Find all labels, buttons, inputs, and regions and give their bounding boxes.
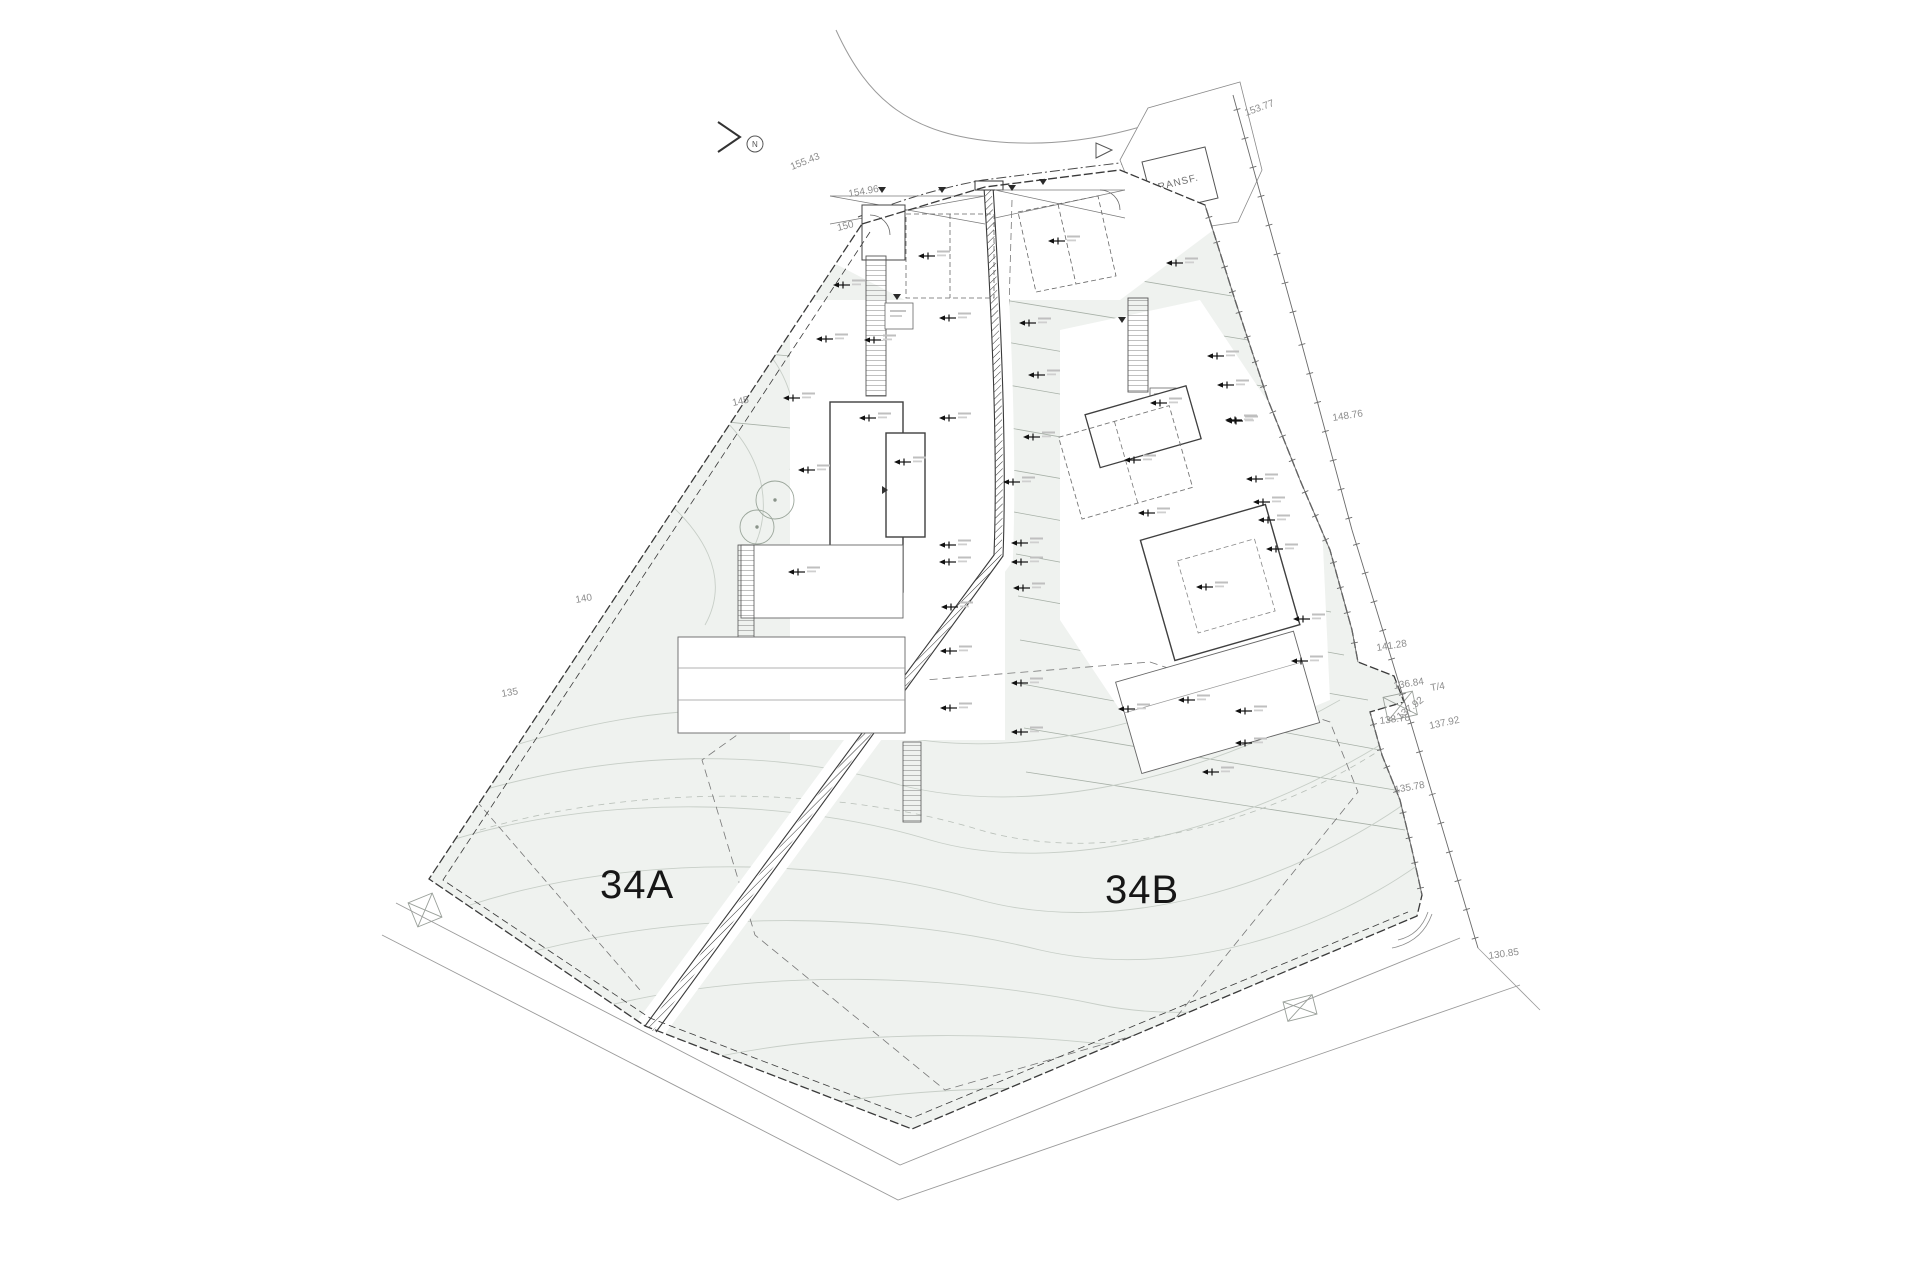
stairs-a3 [903, 742, 921, 822]
road-direction-arrow-icon [1096, 143, 1112, 158]
elevation-label: 140 [575, 592, 594, 606]
elevation-label: 135.78 [1394, 780, 1426, 796]
terrace-a1 [741, 545, 903, 618]
elevation-label: 130.85 [1488, 947, 1520, 962]
house-a-wing [886, 433, 925, 537]
north-arrow: N [718, 122, 763, 152]
utility-box-a [885, 303, 913, 329]
elevation-label: 153.77 [1243, 98, 1276, 119]
elevation-label: 154.96 [848, 184, 880, 200]
stairs-b1 [1128, 298, 1148, 392]
stairs-a1 [866, 256, 886, 396]
elevation-label: 150 [836, 219, 855, 234]
elevation-label: 155.43 [789, 151, 822, 173]
elevation-label: 137.92 [1428, 715, 1461, 732]
tree-trunk-2 [755, 525, 758, 528]
terrace-a2 [678, 637, 905, 733]
tree-trunk-1 [773, 498, 776, 501]
north-arrow-icon [718, 122, 740, 152]
site-plan-svg: TRANSF. [0, 0, 1920, 1280]
elevation-label: 135 [501, 686, 520, 700]
north-label: N [752, 140, 758, 149]
site-plan-canvas: TRANSF. [0, 0, 1920, 1280]
plot-a-label: 34A [600, 863, 674, 907]
elevation-label: T/4 [1430, 681, 1446, 694]
survey-box-2 [408, 893, 442, 927]
elevation-label: 141.28 [1376, 638, 1408, 654]
plot-b-label: 34B [1105, 868, 1179, 912]
stairs-a2 [738, 545, 754, 641]
elevation-label: 148.76 [1332, 408, 1364, 424]
